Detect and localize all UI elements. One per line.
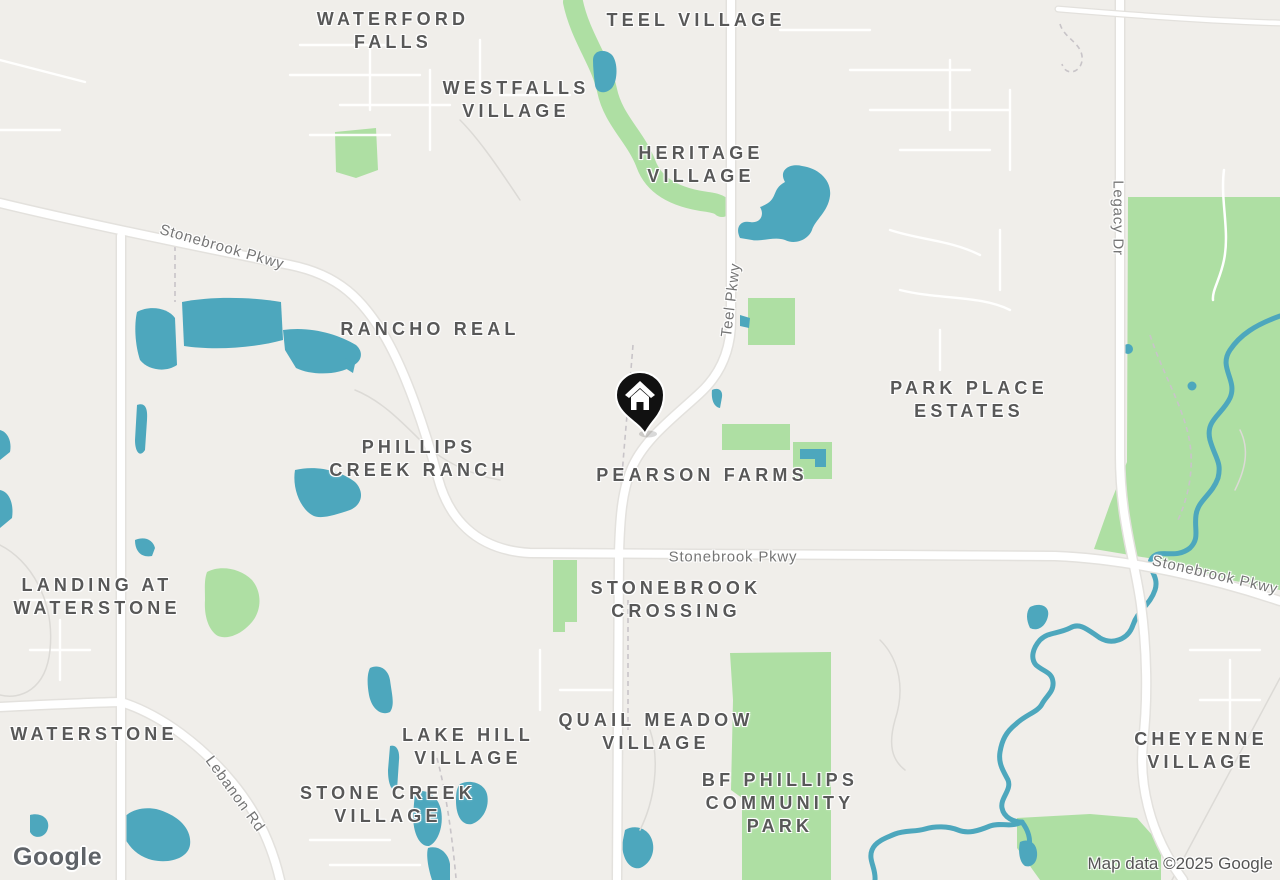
- google-logo[interactable]: Google: [13, 843, 102, 872]
- boundary-dashes: [175, 24, 1191, 878]
- map-canvas[interactable]: WATERFORDFALLSTEEL VILLAGEWESTFALLSVILLA…: [0, 0, 1280, 880]
- map-graphics: [0, 0, 1280, 880]
- map-attribution: Map data ©2025 Google: [1088, 854, 1274, 874]
- main-roads: [0, 0, 1280, 880]
- water-bodies: [0, 51, 1280, 880]
